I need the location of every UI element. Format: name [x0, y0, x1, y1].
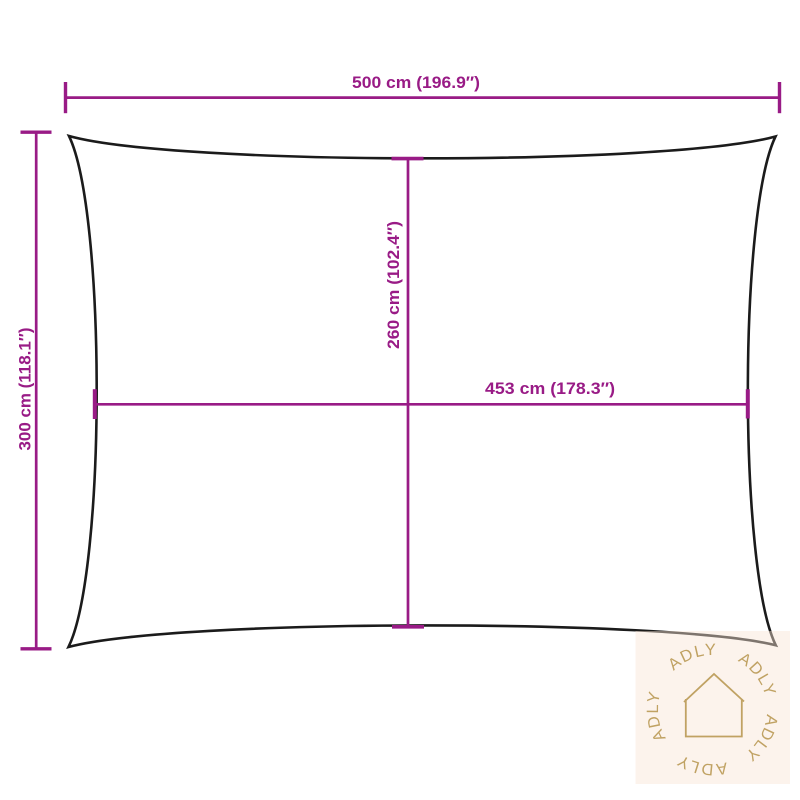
svg-text:260 cm (102.4″): 260 cm (102.4″)	[384, 221, 403, 349]
svg-text:300 cm (118.1″): 300 cm (118.1″)	[16, 328, 35, 451]
svg-text:500 cm (196.9″): 500 cm (196.9″)	[352, 73, 480, 92]
svg-text:453 cm (178.3″): 453 cm (178.3″)	[485, 379, 615, 398]
